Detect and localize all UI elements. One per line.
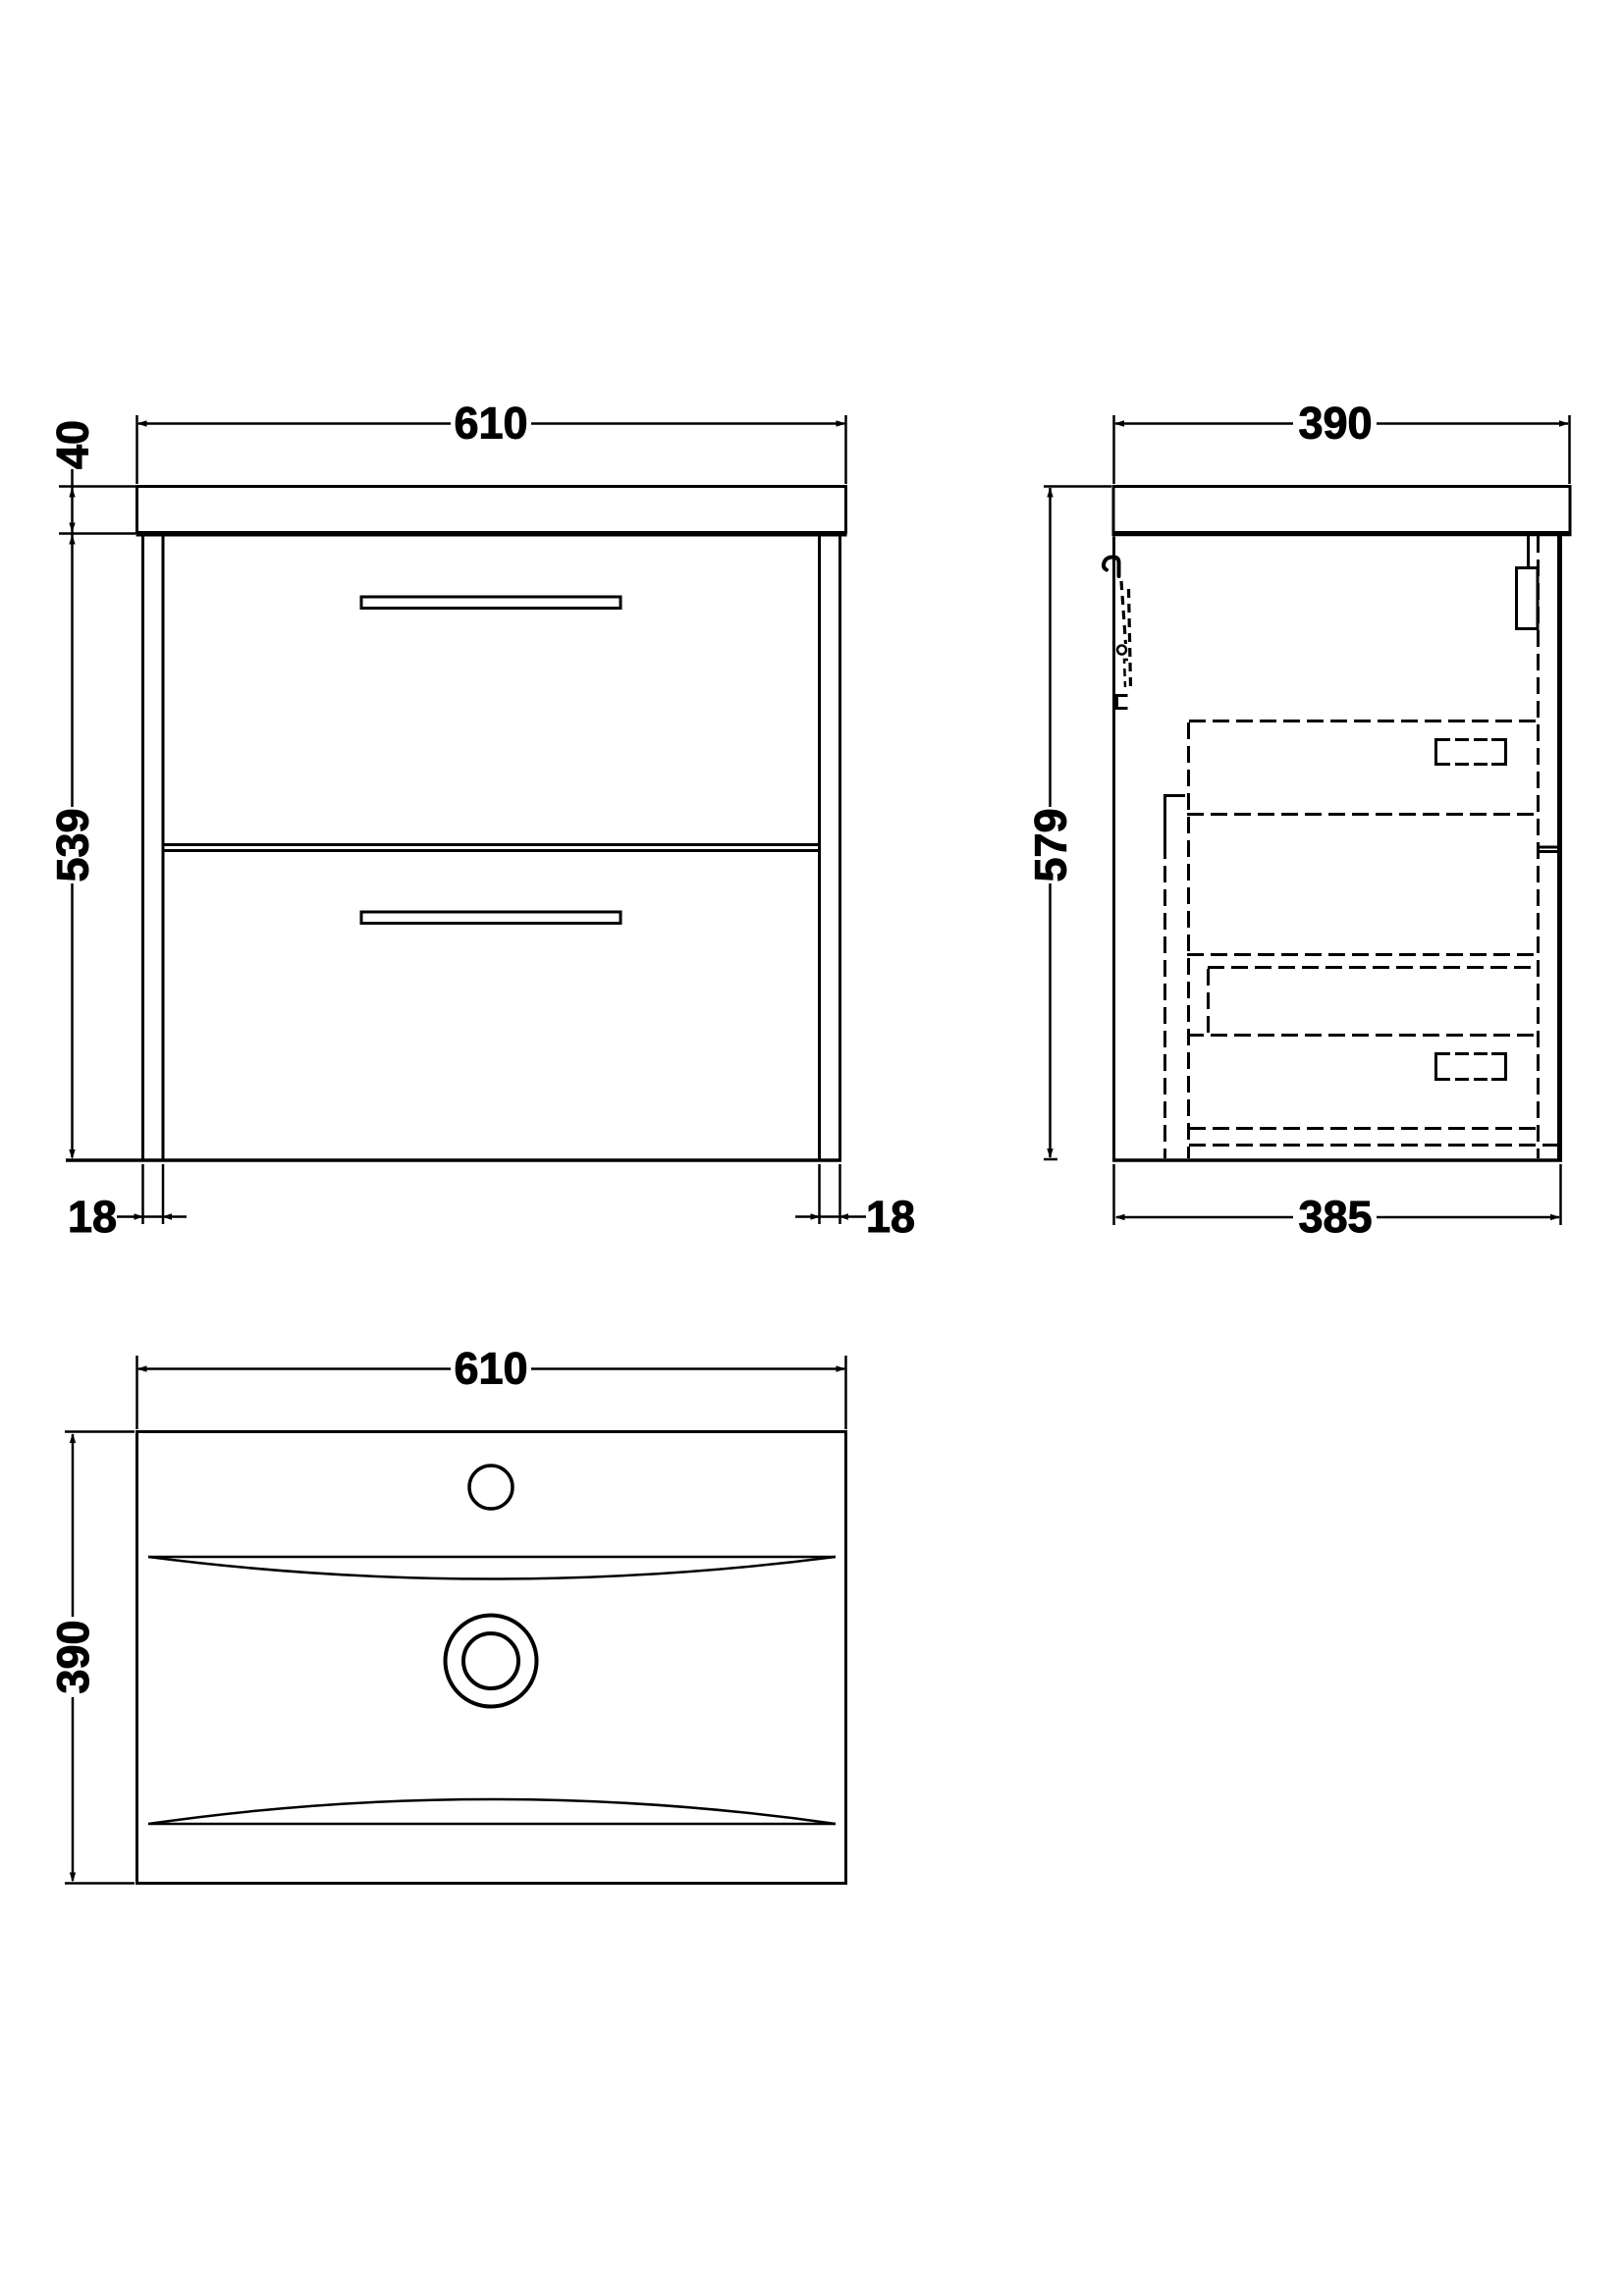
svg-text:539: 539 <box>48 808 98 881</box>
svg-text:390: 390 <box>1298 399 1372 449</box>
svg-text:579: 579 <box>1026 808 1076 881</box>
svg-text:610: 610 <box>454 399 527 449</box>
svg-text:385: 385 <box>1298 1192 1372 1242</box>
svg-text:610: 610 <box>454 1344 527 1394</box>
svg-text:390: 390 <box>48 1620 98 1693</box>
svg-text:18: 18 <box>866 1192 915 1242</box>
svg-text:18: 18 <box>68 1192 117 1242</box>
svg-text:40: 40 <box>48 420 98 469</box>
